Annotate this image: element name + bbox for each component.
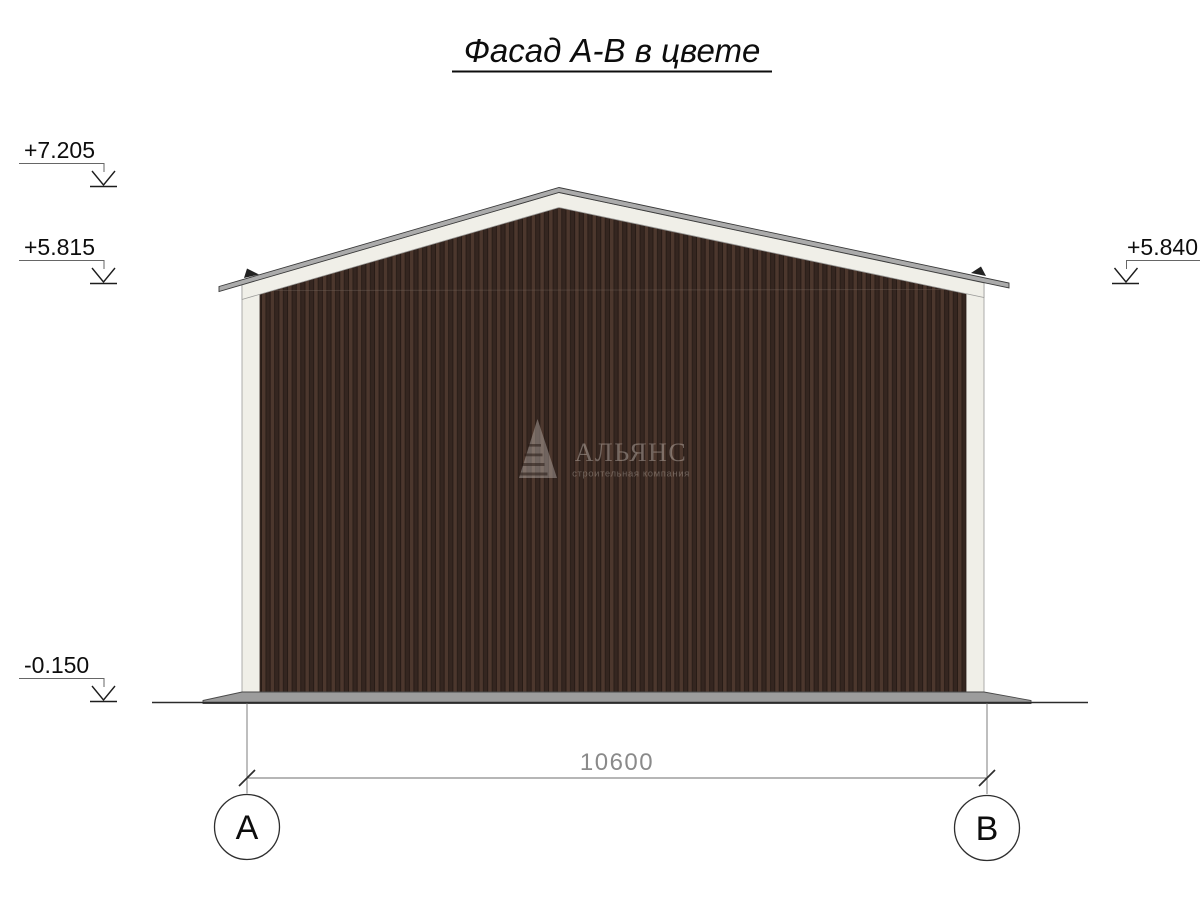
elevation-marker-ground: -0.150 <box>19 652 117 702</box>
elevation-marker-ridge: +7.205 <box>19 137 117 187</box>
axis-bubble-b: В <box>955 796 1020 861</box>
axis-label-a: А <box>236 809 259 847</box>
eave-bracket-right-icon <box>971 267 986 277</box>
elevation-value: +5.840 <box>1127 234 1198 260</box>
dimension-value: 10600 <box>580 749 654 776</box>
logo-step-slit <box>528 444 541 447</box>
logo-step-slit <box>525 454 543 457</box>
elevation-value: +7.205 <box>24 137 95 163</box>
logo-step-slit <box>522 463 545 466</box>
elevation-marker-left-eave: +5.815 <box>19 234 117 284</box>
axis-bubble-a: А <box>215 795 280 860</box>
steel-column-right <box>966 281 984 692</box>
axis-label-b: В <box>976 810 999 848</box>
steel-column-left <box>242 283 260 692</box>
logo-step-slit <box>520 473 548 476</box>
watermark-company-name: АЛЬЯНС <box>575 438 687 467</box>
elevation-value: -0.150 <box>24 652 89 678</box>
foundation-base <box>203 692 1031 704</box>
facade-drawing-canvas: Фасад А-В в цвете АЛЬЯНС строительная ко… <box>0 0 1200 900</box>
watermark-company-tagline: строительная компания <box>572 469 690 480</box>
elevation-value: +5.815 <box>24 234 95 260</box>
drawing-title: Фасад А-В в цвете <box>464 32 761 69</box>
dimension-group: 10600 <box>239 703 995 794</box>
elevation-marker-right-eave: +5.840 <box>1112 234 1200 284</box>
building-facade: АЛЬЯНС строительная компания <box>152 188 1088 704</box>
